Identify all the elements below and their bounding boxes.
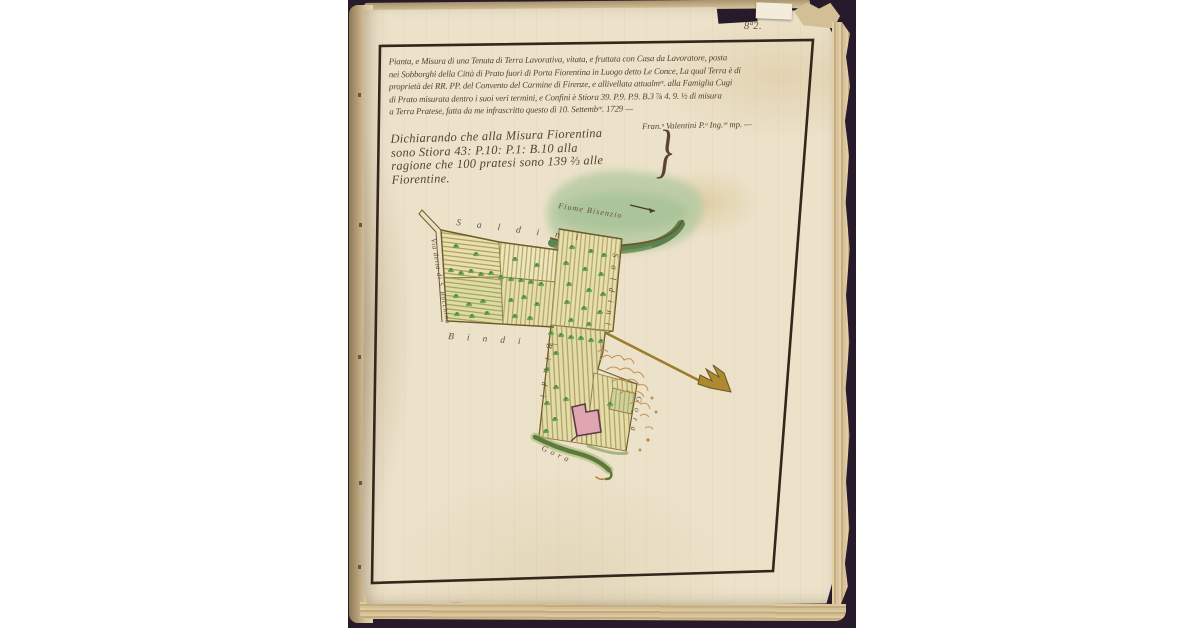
declaration-brace: } bbox=[656, 122, 673, 182]
measure-declaration: Dichiarando che alla Misura Fiorentina s… bbox=[390, 125, 667, 187]
survey-map: Fiume Bisenzio Saldini Saldini Bindi — B… bbox=[419, 171, 731, 479]
title-paragraph: Pianta, e Misura di una Tenuta di Terra … bbox=[389, 51, 776, 119]
folio-number: 8ª2. bbox=[744, 21, 762, 32]
